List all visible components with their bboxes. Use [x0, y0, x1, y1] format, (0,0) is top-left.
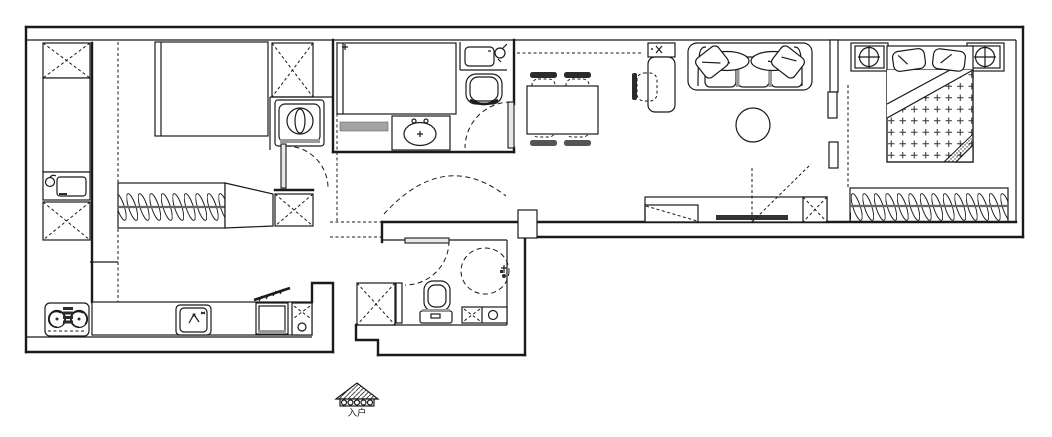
wall-master-west-a: [830, 40, 838, 92]
floor-plan: 入户: [0, 0, 1052, 437]
master-bedroom: [850, 43, 1008, 222]
panel: [396, 283, 402, 323]
dining-table-icon: [527, 86, 598, 134]
wash-basin-kettle-icon: [460, 42, 507, 70]
wall-corridor-dashed-opening: [330, 222, 382, 237]
pillow-icon: [892, 48, 926, 72]
floor-plan-drawing: 入户: [0, 0, 1052, 437]
shower-area-icon: [461, 248, 509, 294]
wardrobe-hangers-icon: [850, 188, 1008, 222]
gas-stove-icon: [45, 303, 89, 336]
washing-machine-icon: [270, 97, 333, 150]
bathroom: [357, 238, 509, 325]
vanity-basin-icon: [462, 307, 507, 323]
sofa-icon: [688, 43, 812, 90]
dressing-table-basin-icon: [392, 116, 450, 150]
entrance-canopy-icon: [336, 383, 378, 399]
study-room: [337, 42, 514, 150]
water-heater-cabinet-icon: [292, 303, 312, 335]
tall-cabinet-desk-icon: [648, 43, 675, 112]
tall-cabinet-icon: [43, 78, 90, 172]
shower-head-icon: [500, 265, 507, 278]
wall-pier: [518, 210, 537, 238]
wall-entry-notch: [356, 325, 378, 355]
low-ledge: [340, 122, 388, 131]
tv-console-icon: [645, 197, 827, 222]
toilet-icon: [420, 281, 452, 323]
entrance-label: 入户: [347, 407, 366, 419]
wardrobe-hangers-icon: [118, 183, 273, 228]
side-dresser-icon: [225, 183, 273, 228]
second-bedroom: [118, 42, 333, 228]
wall-master-west-b: [828, 92, 837, 118]
chair-icon: [466, 74, 502, 104]
dining-area: [517, 43, 675, 146]
double-bed-icon: [887, 46, 973, 162]
wall-kitchen-right: [312, 283, 333, 352]
round-coffee-table-icon: [736, 108, 770, 142]
single-bed-icon: [337, 43, 456, 114]
door-swing-arc: [384, 176, 506, 214]
washer-open-lid-icon: [254, 288, 290, 334]
bedroom-door-icon: [281, 144, 328, 188]
left-balcony: [43, 43, 90, 240]
entrance-symbol: 入户: [336, 383, 378, 419]
kitchen-sink-icon: [176, 305, 211, 335]
wall-master-west-c: [829, 142, 838, 168]
pillow-icon: [932, 48, 966, 72]
bathroom-door-icon: [405, 238, 449, 285]
study-door-icon: [465, 102, 514, 148]
hallway: [384, 176, 506, 214]
kitchen: [45, 288, 312, 336]
shoe-bench-x-icon: [275, 190, 313, 226]
bed-icon: [155, 42, 268, 136]
nightstand-lamp-icon: [851, 43, 888, 71]
utility-sink-icon: [43, 172, 90, 200]
